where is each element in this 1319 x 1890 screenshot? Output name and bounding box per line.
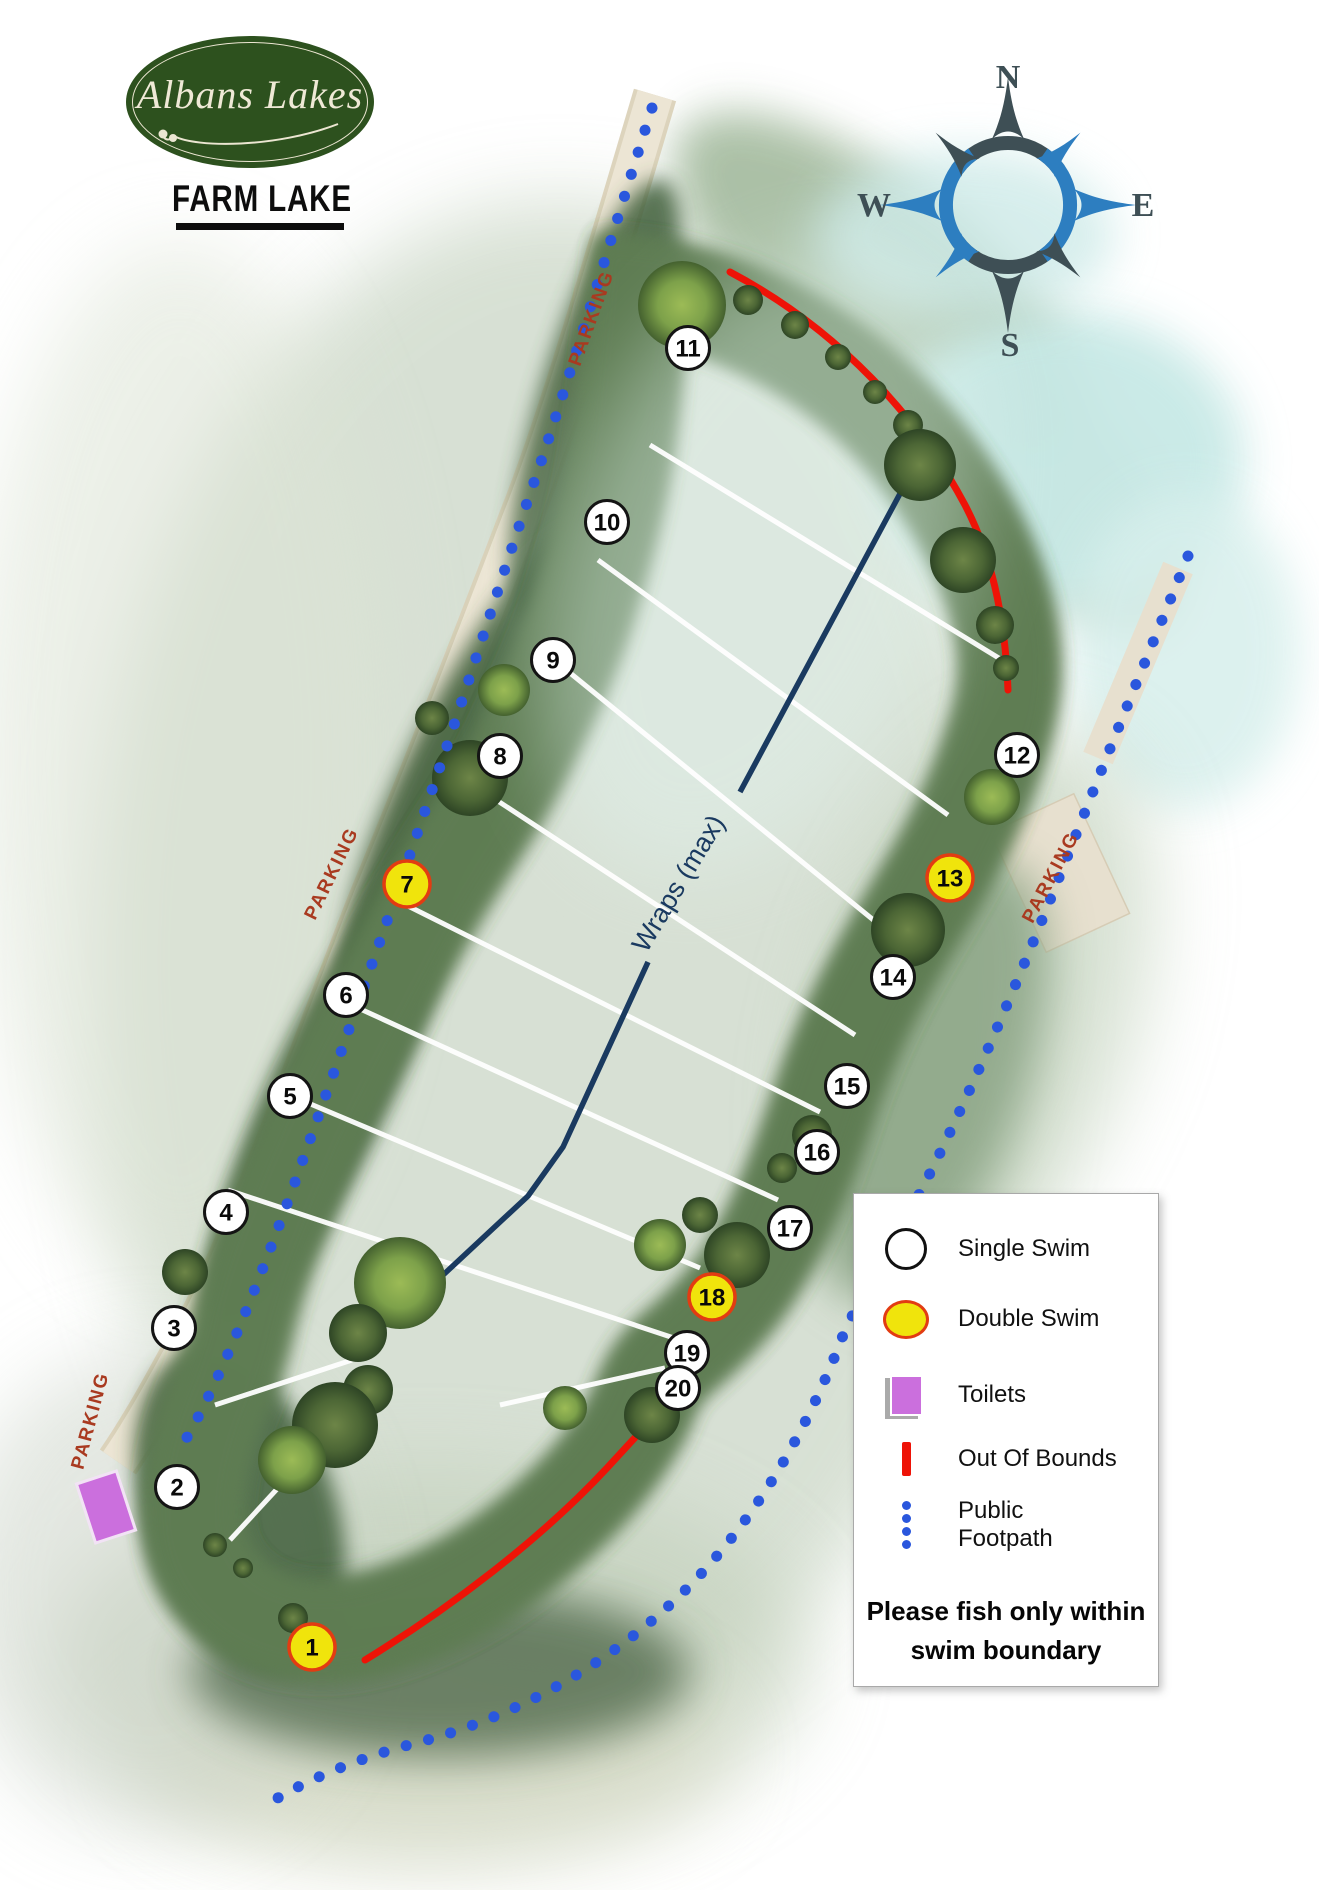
farm-lake-map-page: Wraps (max) PARKING PARKING <box>0 0 1319 1890</box>
swim-marker-number-1: 1 <box>305 1635 318 1662</box>
swim-marker-number-3: 3 <box>167 1316 180 1343</box>
title-underline <box>176 223 344 230</box>
logo-flourish <box>156 118 346 158</box>
compass-north-label: N <box>996 59 1021 96</box>
logo-brand-text: Albans Lakes <box>137 71 363 118</box>
out-of-bounds-label: Out Of Bounds <box>958 1445 1117 1473</box>
footpath-label-line2: Footpath <box>958 1525 1053 1553</box>
swim-marker-number-16: 16 <box>804 1140 831 1167</box>
legend-row-footpath: Public Footpath <box>854 1494 1158 1556</box>
single-swim-label: Single Swim <box>958 1235 1090 1263</box>
swim-marker-number-11: 11 <box>675 336 700 363</box>
swim-marker-number-2: 2 <box>170 1475 183 1502</box>
swim-marker-number-18: 18 <box>699 1285 726 1312</box>
legend-note: Please fish only within swim boundary <box>854 1592 1158 1670</box>
lake-name-title: FARM LAKE <box>172 178 348 220</box>
swim-marker-number-6: 6 <box>339 983 352 1010</box>
compass-east-label: E <box>1132 187 1155 224</box>
legend-note-line2: swim boundary <box>854 1631 1158 1670</box>
legend-row-toilets: Toilets <box>854 1372 1158 1418</box>
single-swim-icon <box>885 1228 927 1270</box>
compass-south-label: S <box>1001 327 1020 364</box>
swim-marker-number-15: 15 <box>834 1074 861 1101</box>
double-swim-label: Double Swim <box>958 1305 1099 1333</box>
legend-panel: Single Swim Double Swim Toilets Out Of B… <box>853 1193 1159 1687</box>
albans-lakes-logo: Albans Lakes <box>126 36 374 168</box>
double-swim-icon <box>883 1300 929 1339</box>
public-footpath-icon <box>902 1501 911 1549</box>
swim-marker-number-19: 19 <box>674 1341 701 1368</box>
swim-marker-number-5: 5 <box>283 1084 296 1111</box>
legend-row-out-of-bounds: Out Of Bounds <box>854 1437 1158 1481</box>
swim-marker-number-4: 4 <box>219 1200 233 1227</box>
legend-note-line1: Please fish only within <box>854 1592 1158 1631</box>
swim-marker-number-7: 7 <box>400 872 413 899</box>
swim-marker-number-9: 9 <box>546 648 559 675</box>
swim-marker-number-12: 12 <box>1004 743 1031 770</box>
out-of-bounds-icon <box>902 1442 911 1476</box>
swim-marker-number-14: 14 <box>880 965 907 992</box>
compass-west-label: W <box>857 187 891 224</box>
swim-marker-number-10: 10 <box>594 510 621 537</box>
toilets-label: Toilets <box>958 1381 1026 1409</box>
footpath-label-line1: Public <box>958 1497 1053 1525</box>
swim-marker-number-8: 8 <box>493 744 506 771</box>
farm-lake-title-block: FARM LAKE <box>150 178 370 230</box>
legend-row-double-swim: Double Swim <box>854 1296 1158 1342</box>
swim-marker-number-13: 13 <box>937 866 964 893</box>
swim-marker-number-17: 17 <box>777 1216 804 1243</box>
toilets-icon <box>890 1375 923 1416</box>
legend-row-single-swim: Single Swim <box>854 1226 1158 1272</box>
swim-marker-number-20: 20 <box>665 1376 692 1403</box>
